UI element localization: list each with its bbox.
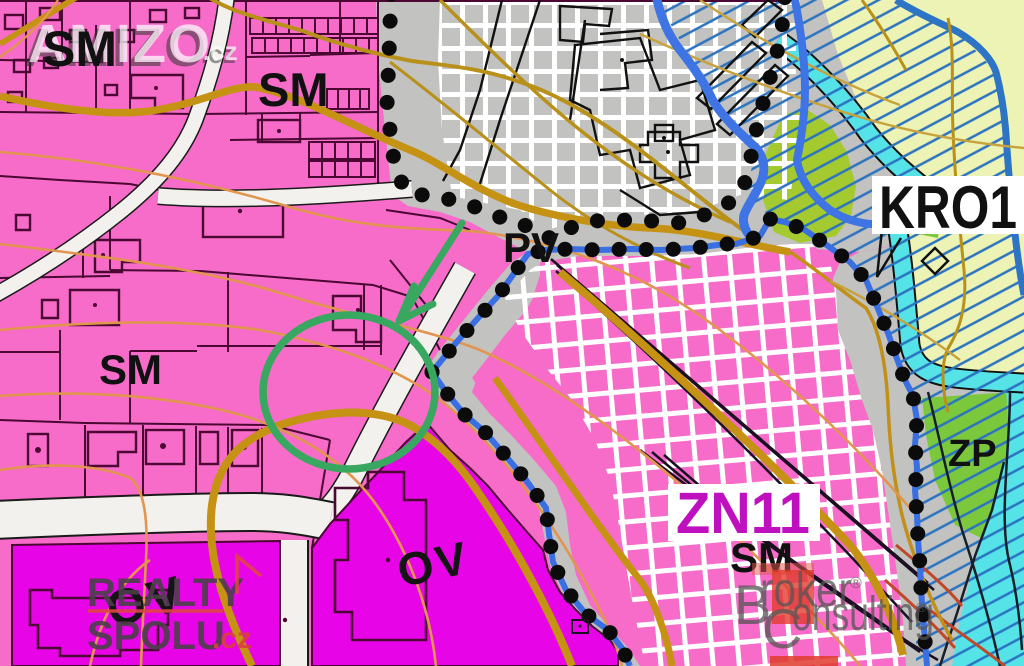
svg-text:.cz: .cz	[203, 36, 238, 66]
svg-text:PV: PV	[503, 224, 559, 271]
svg-text:ZP: ZP	[948, 433, 997, 475]
svg-text:SM: SM	[258, 63, 329, 116]
svg-text:®: ®	[916, 599, 927, 615]
svg-text:SPOLU: SPOLU	[87, 614, 225, 658]
svg-text:SM: SM	[99, 346, 162, 393]
svg-text:.cz: .cz	[212, 622, 252, 655]
svg-text:REALTY: REALTY	[87, 571, 244, 615]
svg-text:KRO1: KRO1	[879, 174, 1017, 241]
svg-text:onsulting: onsulting	[792, 588, 934, 641]
svg-text:SM: SM	[42, 21, 117, 77]
